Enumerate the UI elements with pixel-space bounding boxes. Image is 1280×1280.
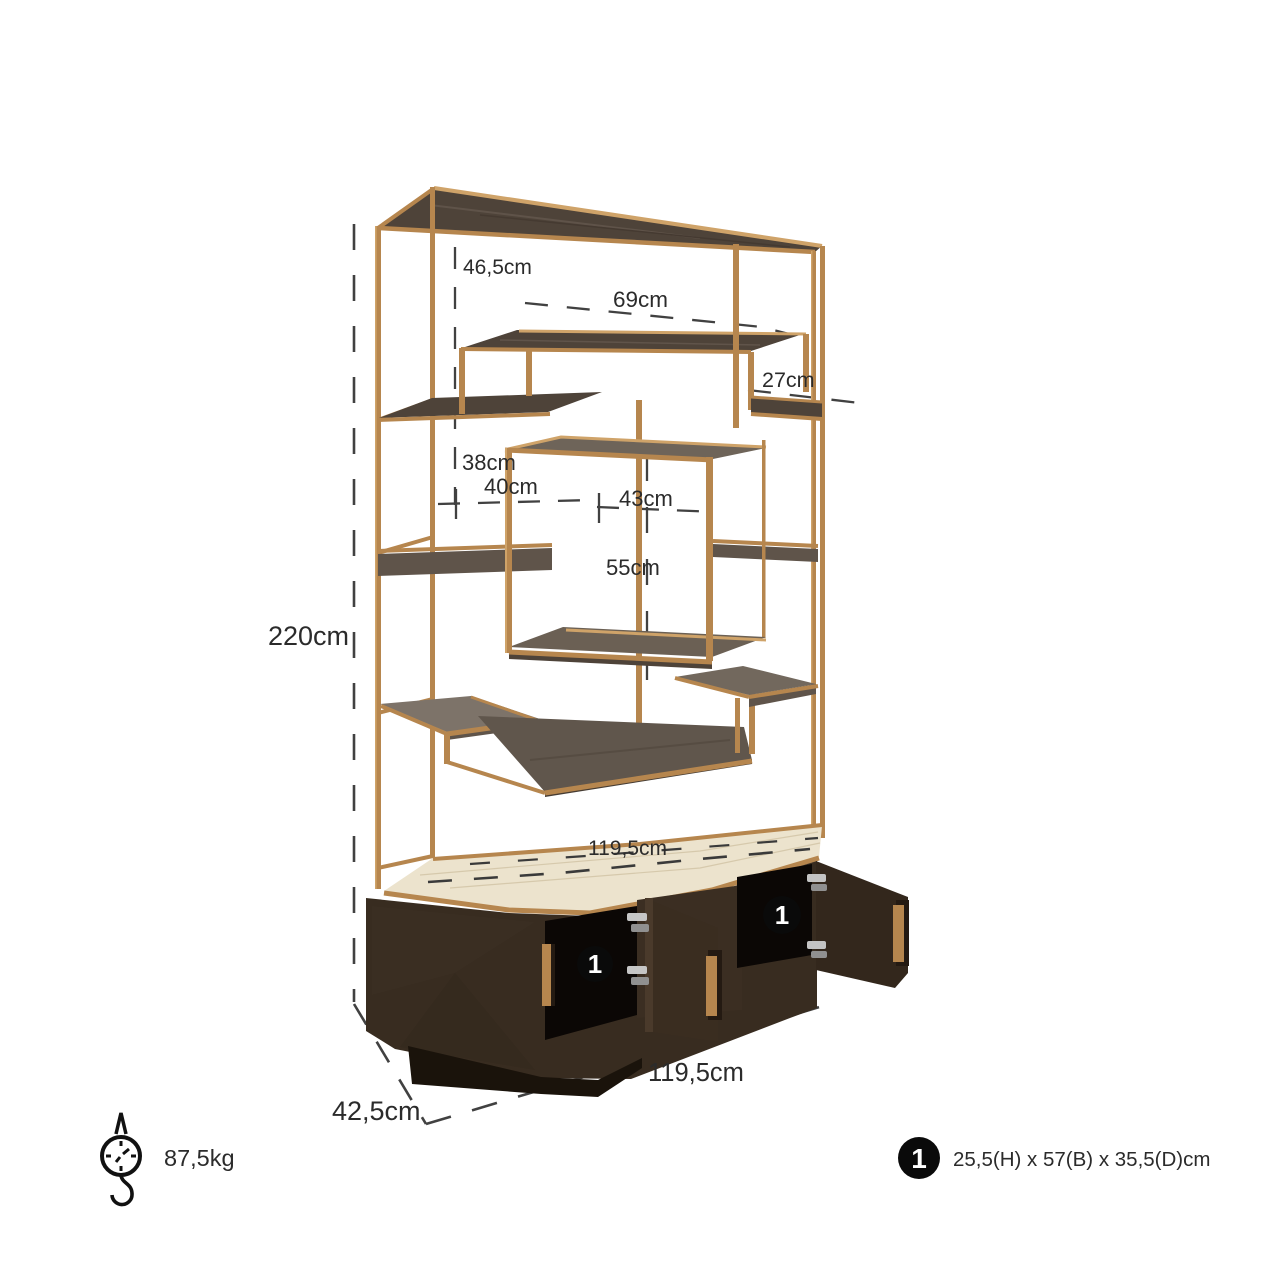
svg-text:55cm: 55cm — [606, 555, 660, 580]
svg-text:42,5cm: 42,5cm — [332, 1096, 421, 1126]
svg-text:38cm: 38cm — [462, 450, 516, 475]
svg-text:1: 1 — [911, 1143, 927, 1174]
svg-text:119,5cm: 119,5cm — [588, 837, 667, 860]
svg-text:87,5kg: 87,5kg — [164, 1145, 235, 1171]
svg-text:69cm: 69cm — [613, 287, 668, 312]
svg-text:220cm: 220cm — [268, 621, 349, 651]
svg-text:27cm: 27cm — [762, 368, 815, 392]
svg-text:119,5cm: 119,5cm — [648, 1059, 744, 1087]
svg-text:43cm: 43cm — [619, 486, 673, 511]
svg-text:25,5(H) x 57(B) x 35,5(D)cm: 25,5(H) x 57(B) x 35,5(D)cm — [953, 1148, 1210, 1171]
svg-text:46,5cm: 46,5cm — [463, 256, 532, 279]
svg-text:1: 1 — [588, 949, 602, 979]
svg-text:1: 1 — [775, 900, 789, 930]
svg-text:40cm: 40cm — [484, 474, 538, 499]
